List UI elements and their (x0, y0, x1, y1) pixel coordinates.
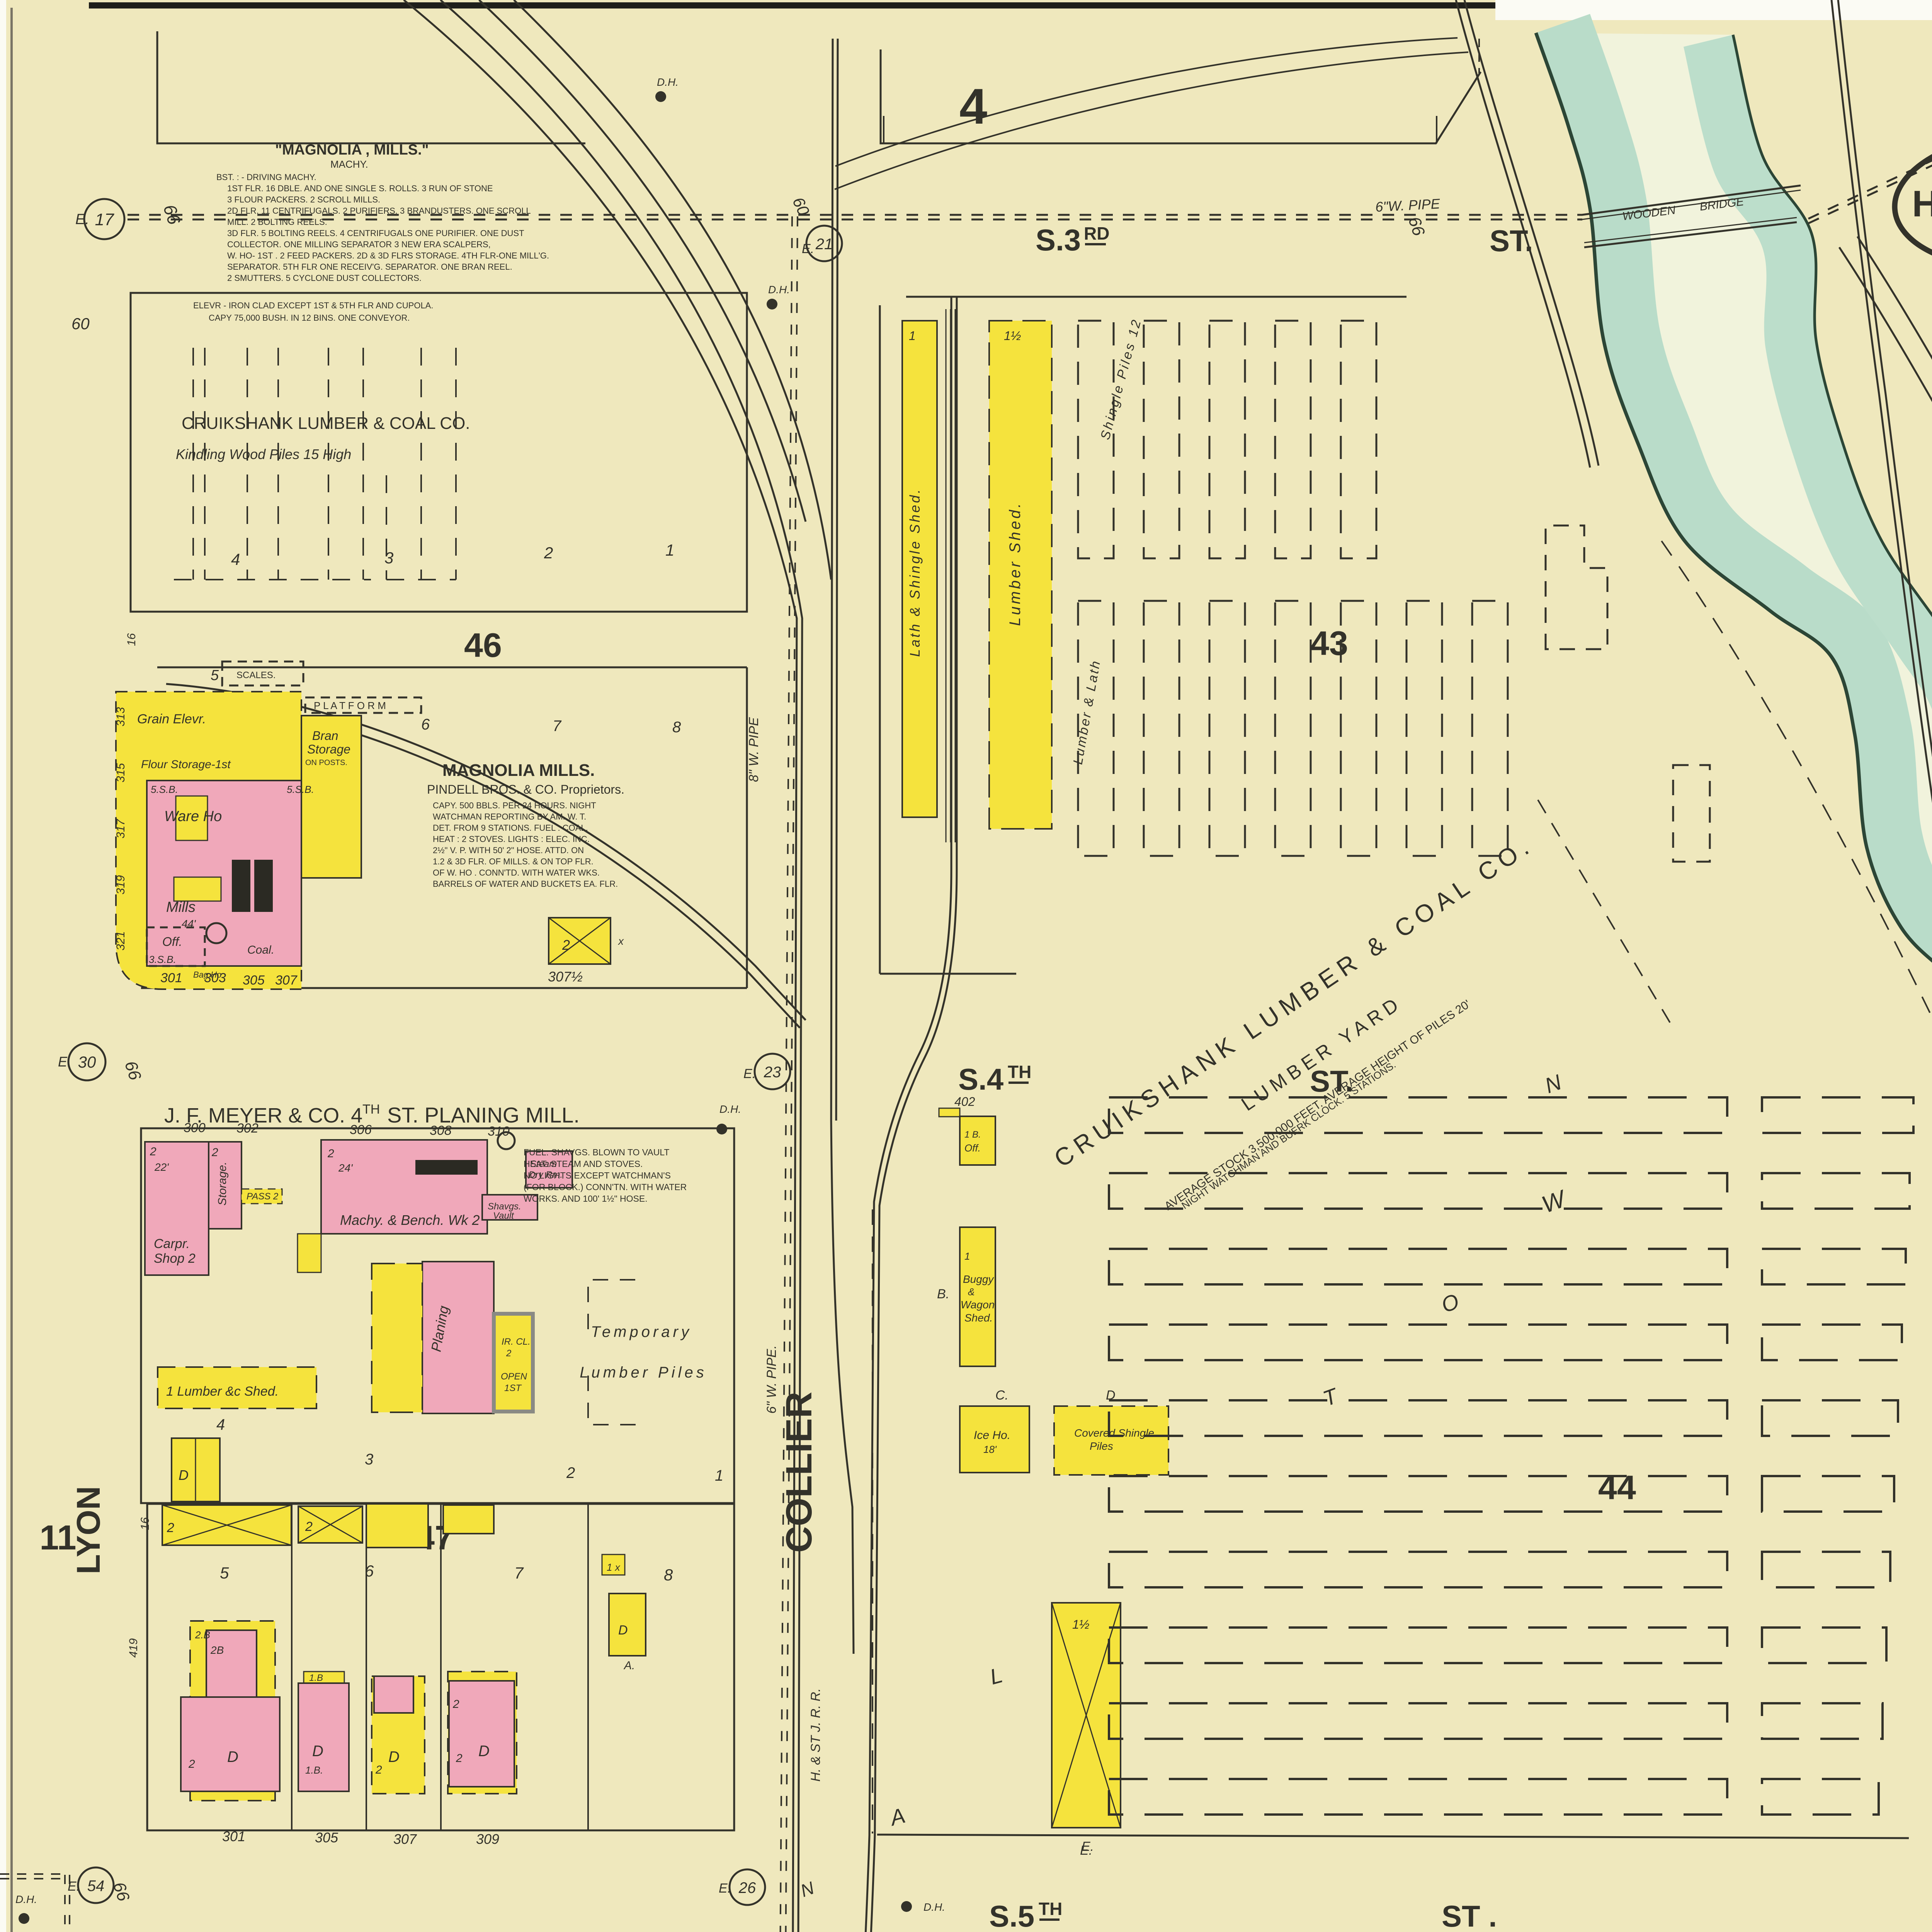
svg-text:3: 3 (384, 549, 393, 567)
svg-text:H. & ST J. R. R.: H. & ST J. R. R. (808, 1688, 823, 1782)
svg-text:2½" V. P. WITH 50' 2" HOSE. A: 2½" V. P. WITH 50' 2" HOSE. ATTD. ON (433, 845, 584, 855)
svg-text:303: 303 (204, 971, 226, 985)
svg-text:W. HO- 1ST . 2 FEED PACKERS.: W. HO- 1ST . 2 FEED PACKERS. 2D & 3D FLR… (227, 251, 549, 260)
svg-text:1: 1 (964, 1250, 970, 1262)
svg-text:308: 308 (430, 1123, 452, 1138)
svg-text:3.S.B.: 3.S.B. (149, 954, 176, 965)
svg-text:Shavgs.: Shavgs. (488, 1201, 521, 1212)
svg-text:TH: TH (1039, 1899, 1062, 1919)
svg-text:5.S.B.: 5.S.B. (151, 784, 178, 795)
svg-text:5: 5 (211, 667, 219, 684)
svg-text:301: 301 (222, 1828, 245, 1844)
svg-text:Vault: Vault (493, 1211, 514, 1221)
svg-text:E.: E. (1082, 1839, 1094, 1854)
svg-text:309: 309 (476, 1831, 499, 1847)
svg-text:1.B.: 1.B. (305, 1764, 323, 1776)
svg-text:TH: TH (1008, 1062, 1031, 1082)
svg-text:Ice Ho.: Ice Ho. (974, 1429, 1010, 1442)
svg-text:301: 301 (160, 971, 182, 985)
svg-text:2 SMUTTERS. 5 CYCLONE DUST CO: 2 SMUTTERS. 5 CYCLONE DUST COLLECTORS. (227, 273, 422, 283)
svg-text:OF W. HO . CONN'TD. WITH WAT: OF W. HO . CONN'TD. WITH WATER WKS. (433, 868, 600, 878)
svg-text:2: 2 (188, 1758, 195, 1770)
svg-text:Piles: Piles (1090, 1440, 1113, 1452)
svg-text:MAGNOLIA MILLS.: MAGNOLIA MILLS. (442, 761, 595, 780)
svg-text:1: 1 (665, 541, 674, 559)
svg-text:ELEVR - IRON CLAD EXCEPT 1ST &: ELEVR - IRON CLAD EXCEPT 1ST & 5TH FLR A… (193, 301, 433, 310)
svg-text:S.3: S.3 (1036, 223, 1081, 257)
svg-text:5.S.B.: 5.S.B. (287, 784, 314, 795)
svg-text:17: 17 (95, 210, 114, 229)
svg-text:Off.: Off. (162, 935, 182, 949)
svg-text:1: 1 (909, 329, 916, 343)
svg-text:(FOR BLOCK.) CONN'TN. WITH: (FOR BLOCK.) CONN'TN. WITH WATER (524, 1182, 687, 1192)
svg-text:2: 2 (305, 1519, 313, 1534)
svg-text:D: D (618, 1623, 628, 1638)
svg-text:OPEN: OPEN (501, 1371, 527, 1382)
svg-text:4: 4 (216, 1416, 225, 1433)
svg-text:D: D (179, 1467, 189, 1483)
svg-text:C.: C. (995, 1388, 1009, 1403)
svg-text:Lumber Shed.: Lumber Shed. (1007, 501, 1024, 626)
svg-text:FUEL: SHAVGS. BLOWN TO VAU: FUEL: SHAVGS. BLOWN TO VAULT (524, 1147, 669, 1157)
svg-text:44': 44' (182, 918, 196, 930)
svg-text:321: 321 (114, 931, 127, 951)
svg-text:307: 307 (393, 1831, 417, 1847)
svg-text:6: 6 (421, 716, 430, 733)
svg-text:MACHY.: MACHY. (330, 158, 368, 170)
svg-text:Lath & Shingle Shed.: Lath & Shingle Shed. (907, 488, 923, 657)
svg-text:302: 302 (236, 1121, 259, 1136)
svg-text:1½: 1½ (1004, 329, 1021, 343)
svg-text:NO LIGHTS EXCEPT WATCHMAN'S: NO LIGHTS EXCEPT WATCHMAN'S (524, 1170, 671, 1180)
svg-text:Coal.: Coal. (247, 944, 274, 956)
svg-text:Storage.: Storage. (216, 1162, 229, 1206)
svg-text:317: 317 (114, 819, 127, 838)
svg-text:CRUIKSHANK LUMBER & COAL C: CRUIKSHANK LUMBER & COAL CO. (182, 414, 470, 433)
svg-text:2B: 2B (210, 1644, 224, 1656)
svg-text:22': 22' (154, 1161, 169, 1173)
svg-text:Ware Ho: Ware Ho (164, 808, 222, 825)
svg-text:2: 2 (562, 937, 570, 953)
svg-text:D: D (312, 1743, 323, 1760)
svg-text:54: 54 (87, 1878, 105, 1895)
svg-text:&: & (968, 1286, 975, 1298)
svg-text:RD: RD (1084, 223, 1109, 243)
svg-text:P L A T F O R M: P L A T F O R M (314, 700, 386, 711)
svg-text:E.: E. (75, 211, 89, 228)
svg-text:SCALES.: SCALES. (236, 670, 276, 680)
svg-text:MILL. 2 BOLTING REELS.: MILL. 2 BOLTING REELS. (227, 217, 327, 227)
svg-text:2: 2 (150, 1145, 156, 1158)
svg-text:24': 24' (338, 1162, 353, 1174)
svg-text:307: 307 (275, 973, 298, 988)
svg-text:S.4: S.4 (958, 1062, 1003, 1096)
svg-text:ST.: ST. (1310, 1064, 1354, 1098)
svg-text:26: 26 (738, 1879, 756, 1896)
svg-text:CAPY. 500 BBLS. PER 24 HOUR: CAPY. 500 BBLS. PER 24 HOURS. NIGHT (433, 801, 596, 810)
svg-text:B.: B. (937, 1287, 949, 1301)
svg-text:Grain Elevr.: Grain Elevr. (137, 712, 206, 726)
svg-text:ST. PLANING MILL.: ST. PLANING MILL. (387, 1103, 580, 1127)
svg-text:1ST: 1ST (504, 1383, 522, 1393)
svg-text:1ST FLR. 16 DBLE. AND ONE SI: 1ST FLR. 16 DBLE. AND ONE SINGLE S. ROLL… (227, 184, 493, 193)
svg-text:2D FLR. 11 CENTRIFUGALS. 2 P: 2D FLR. 11 CENTRIFUGALS. 2 PURIFIERS. 3 … (227, 206, 531, 216)
svg-text:1.2 & 3D FLR. OF MILLS. & ON T: 1.2 & 3D FLR. OF MILLS. & ON TOP FLR. (433, 857, 594, 866)
svg-text:Shop 2: Shop 2 (154, 1251, 196, 1266)
svg-text:16: 16 (139, 1517, 151, 1530)
svg-text:307½: 307½ (548, 969, 583, 985)
svg-text:"MAGNOLIA , MILLS.": "MAGNOLIA , MILLS." (275, 142, 429, 158)
svg-text:18': 18' (983, 1444, 997, 1455)
svg-text:7: 7 (553, 718, 562, 735)
svg-text:1.B: 1.B (309, 1673, 323, 1683)
svg-text:1 Lumber &c Shed.: 1 Lumber &c Shed. (166, 1384, 279, 1399)
svg-text:Wagon: Wagon (961, 1299, 995, 1311)
svg-text:2: 2 (566, 1464, 575, 1481)
svg-text:1½: 1½ (1072, 1617, 1089, 1631)
svg-text:D.H.: D.H. (719, 1103, 741, 1115)
svg-text:5: 5 (220, 1564, 229, 1582)
svg-text:Buggy: Buggy (963, 1273, 994, 1285)
svg-text:3D FLR. 5 BOLTING REELS. 4 CE: 3D FLR. 5 BOLTING REELS. 4 CENTRIFUGALS … (227, 228, 524, 238)
svg-text:WATCHMAN REPORTING BY AM. W: WATCHMAN REPORTING BY AM. W. T. (433, 812, 586, 821)
svg-text:1 B.: 1 B. (964, 1129, 981, 1140)
svg-text:46: 46 (464, 626, 502, 664)
svg-text:BST. : - DRIVING MACHY.: BST. : - DRIVING MACHY. (216, 172, 316, 182)
svg-text:D: D (388, 1748, 400, 1765)
svg-text:D: D (227, 1748, 238, 1765)
svg-text:3 FLOUR PACKERS. 2 SCROLL MIL: 3 FLOUR PACKERS. 2 SCROLL MILLS. (227, 195, 380, 204)
svg-text:CAPY 75,000 BUSH. IN 12 BINS.: CAPY 75,000 BUSH. IN 12 BINS. ONE CONVEY… (209, 313, 410, 323)
svg-text:Flour Storage-1st: Flour Storage-1st (141, 758, 231, 771)
svg-text:300: 300 (184, 1121, 206, 1135)
svg-text:DET. FROM 9 STATIONS. FUEL: DET. FROM 9 STATIONS. FUEL : COAL. (433, 823, 588, 833)
svg-text:30: 30 (78, 1053, 96, 1071)
svg-text:2: 2 (506, 1348, 511, 1359)
svg-text:D.H.: D.H. (15, 1893, 37, 1905)
svg-text:Off.: Off. (964, 1142, 981, 1154)
svg-text:Machy. & Bench. Wk 2: Machy. & Bench. Wk 2 (340, 1212, 480, 1228)
svg-text:Bran: Bran (312, 729, 338, 743)
svg-text:2: 2 (375, 1764, 382, 1776)
svg-text:4: 4 (231, 550, 240, 568)
svg-text:6" W. PIPE.: 6" W. PIPE. (764, 1345, 779, 1413)
svg-text:419: 419 (127, 1638, 140, 1658)
svg-text:Mills: Mills (166, 899, 196, 915)
svg-text:x: x (617, 935, 624, 947)
svg-text:ST.: ST. (1490, 224, 1533, 258)
svg-text:306: 306 (350, 1122, 372, 1137)
svg-text:315: 315 (114, 763, 127, 782)
svg-text:HANNIBAL: HANNIBAL (1912, 183, 1932, 224)
svg-text:8: 8 (664, 1566, 673, 1584)
svg-text:8" W. PIPE: 8" W. PIPE (747, 717, 761, 782)
svg-text:2: 2 (452, 1698, 459, 1711)
svg-text:COLLIER: COLLIER (779, 1392, 820, 1553)
svg-text:PASS 2: PASS 2 (247, 1191, 278, 1202)
svg-text:2.B: 2.B (195, 1629, 210, 1641)
svg-text:PINDELL BROS. & CO. Proprie: PINDELL BROS. & CO. Proprietors. (427, 782, 624, 796)
svg-text:COLLECTOR. ONE MILLING SEPARAT: COLLECTOR. ONE MILLING SEPARATOR 3 NEW E… (227, 240, 491, 249)
svg-text:44: 44 (1598, 1468, 1636, 1507)
svg-text:BARRELS OF WATER AND BUCKETS E: BARRELS OF WATER AND BUCKETS EA. FLR. (433, 879, 618, 889)
svg-text:TH: TH (362, 1102, 380, 1117)
svg-text:21: 21 (815, 236, 833, 253)
svg-text:WORKS. AND 100' 1½" HOSE.: WORKS. AND 100' 1½" HOSE. (524, 1194, 648, 1204)
svg-text:313: 313 (114, 707, 127, 726)
svg-text:Covered Shingle: Covered Shingle (1074, 1427, 1154, 1439)
svg-text:SEPARATOR. 5TH FLR ONE RECEIV': SEPARATOR. 5TH FLR ONE RECEIV'G. SEPARAT… (227, 262, 512, 272)
svg-text:2: 2 (544, 544, 553, 562)
svg-text:6: 6 (365, 1562, 374, 1580)
svg-text:2: 2 (456, 1752, 463, 1765)
svg-text:IR. CL.: IR. CL. (502, 1337, 531, 1347)
svg-text:Carpr.: Carpr. (154, 1236, 190, 1251)
svg-text:Temporary: Temporary (591, 1323, 692, 1340)
svg-text:4: 4 (959, 78, 987, 134)
svg-text:D: D (478, 1743, 490, 1760)
svg-text:HEAT: STEAM AND STOVES.: HEAT: STEAM AND STOVES. (524, 1159, 643, 1169)
svg-text:60: 60 (71, 315, 90, 333)
svg-text:2: 2 (211, 1146, 218, 1159)
svg-text:2: 2 (327, 1147, 334, 1160)
svg-text:305: 305 (243, 973, 265, 988)
svg-text:HEAT : 2 STOVES. LIGHTS : E: HEAT : 2 STOVES. LIGHTS : ELEC. INC. (433, 834, 590, 844)
svg-text:23: 23 (764, 1064, 781, 1081)
svg-text:S.5: S.5 (989, 1899, 1034, 1932)
svg-text:2: 2 (167, 1520, 174, 1535)
svg-text:Storage: Storage (307, 742, 350, 756)
svg-text:Kindling Wood Piles 15 H: Kindling Wood Piles 15 High (176, 446, 351, 462)
svg-text:16: 16 (125, 633, 138, 646)
svg-text:3: 3 (365, 1451, 373, 1468)
svg-text:Shed.: Shed. (964, 1312, 993, 1324)
svg-text:8: 8 (672, 719, 681, 736)
svg-text:7: 7 (514, 1564, 524, 1582)
svg-text:1: 1 (715, 1467, 723, 1484)
svg-text:43: 43 (1310, 624, 1348, 662)
svg-text:Lumber Piles: Lumber Piles (580, 1364, 707, 1381)
svg-text:D.H.: D.H. (768, 284, 790, 296)
svg-text:A.: A. (623, 1659, 635, 1672)
svg-text:305: 305 (315, 1830, 338, 1845)
svg-text:1 x: 1 x (607, 1561, 621, 1573)
svg-text:D.H.: D.H. (657, 76, 679, 88)
svg-text:ON POSTS.: ON POSTS. (305, 759, 347, 767)
svg-text:ST .: ST . (1442, 1899, 1497, 1932)
svg-text:402: 402 (954, 1095, 975, 1109)
svg-text:LYON: LYON (70, 1486, 107, 1574)
svg-text:319: 319 (114, 875, 127, 895)
svg-text:D.H.: D.H. (923, 1901, 945, 1913)
